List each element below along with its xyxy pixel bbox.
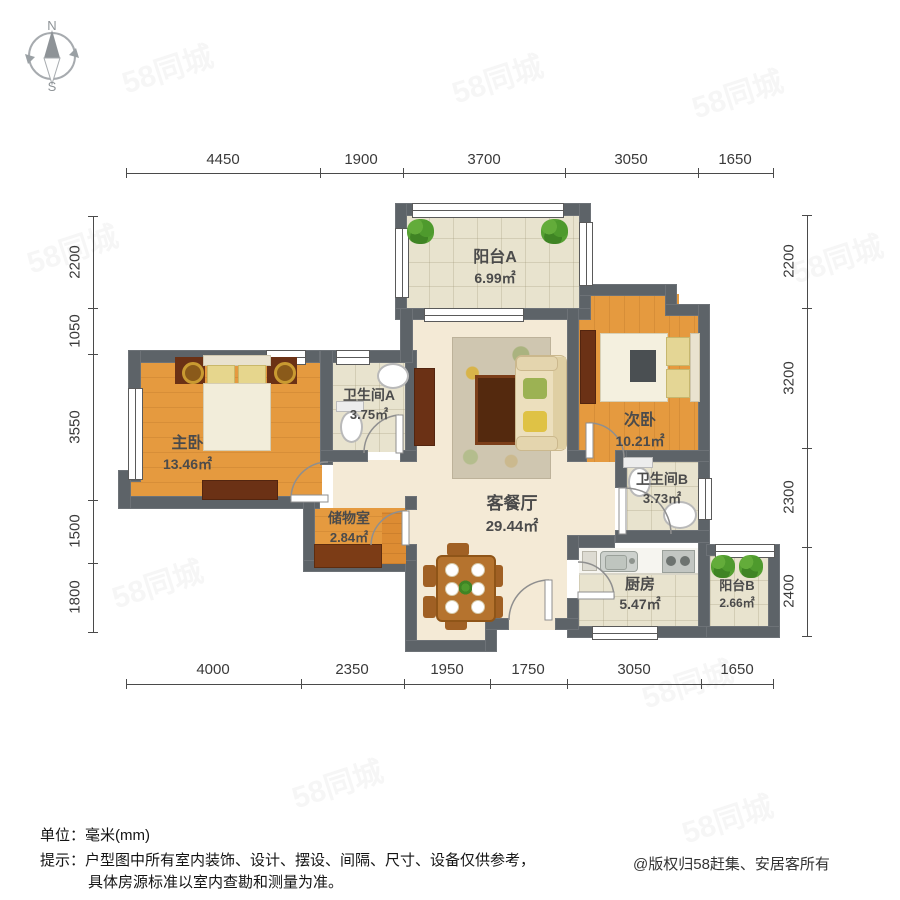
entry-door-leaf: [545, 580, 552, 620]
room-name: 卫生间B: [616, 470, 708, 490]
dimension-label: 3550: [67, 410, 84, 443]
dimension-label: 3200: [781, 361, 798, 394]
room-label-storage: 储物室 2.84㎡: [303, 509, 395, 547]
dimension-label: 1950: [430, 661, 463, 678]
plant-icon: [541, 219, 568, 244]
room-label-balcony-b: 阳台B 2.66㎡: [700, 577, 774, 612]
footer-tip-line2: 具体房源标准以室内查勘和测量为准。: [88, 871, 343, 892]
room-area: 29.44㎡: [437, 516, 587, 537]
dimension-tick: [88, 354, 98, 355]
compass-icon: N S: [22, 14, 82, 94]
dimension-tick: [698, 168, 699, 178]
dimension-label: 2400: [781, 574, 798, 607]
room-area: 10.21㎡: [582, 432, 698, 452]
door-arc: [509, 580, 549, 620]
door-leaf: [402, 511, 409, 545]
dimension-tick: [301, 679, 302, 689]
dimension-tick: [126, 168, 127, 178]
dimension-label: 1750: [511, 661, 544, 678]
dimension-label: 2300: [781, 480, 798, 513]
dimension-tick: [567, 679, 568, 689]
room-name: 阳台A: [415, 247, 575, 269]
dimension-tick: [802, 448, 812, 449]
room-name: 次卧: [582, 410, 698, 432]
room-area: 2.66㎡: [700, 595, 774, 612]
dimension-tick: [126, 679, 127, 689]
dimension-tick: [88, 563, 98, 564]
room-name: 厨房: [590, 574, 690, 595]
dimension-label: 1800: [67, 580, 84, 613]
dimension-label: 1050: [67, 314, 84, 347]
room-label-bathroom-b: 卫生间B 3.73㎡: [616, 470, 708, 508]
dimension-label: 1500: [67, 514, 84, 547]
room-name: 客餐厅: [437, 492, 587, 516]
dimension-tick: [88, 308, 98, 309]
room-area: 3.75㎡: [328, 406, 410, 424]
dimension-tick: [802, 308, 812, 309]
dimension-line-left: [93, 216, 94, 632]
dimension-tick: [773, 679, 774, 689]
dimension-label: 1900: [344, 151, 377, 168]
room-area: 13.46㎡: [130, 455, 245, 475]
footer-unit-text: 单位：毫米(mm): [40, 824, 150, 845]
dimension-label: 1650: [720, 661, 753, 678]
dimension-label: 3050: [614, 151, 647, 168]
room-label-kitchen: 厨房 5.47㎡: [590, 574, 690, 615]
room-name: 储物室: [303, 509, 395, 529]
door-arc: [291, 462, 328, 499]
dimension-tick: [565, 168, 566, 178]
room-area: 5.47㎡: [590, 595, 690, 615]
door-leaf: [291, 495, 328, 502]
dimension-label: 2200: [781, 244, 798, 277]
copyright-text: @版权归58赶集、安居客所有: [633, 853, 830, 874]
room-name: 阳台B: [700, 577, 774, 595]
plant-icon: [711, 555, 735, 578]
dimension-line-right: [807, 215, 808, 636]
dimension-tick: [802, 636, 812, 637]
dimension-tick: [773, 168, 774, 178]
dimension-line-bottom: [126, 684, 773, 685]
dimension-tick: [88, 632, 98, 633]
dimension-tick: [320, 168, 321, 178]
dimension-label: 3700: [467, 151, 500, 168]
plant-icon: [739, 555, 763, 578]
floorplan-page: 58同城 58同城 58同城 58同城 58同城 58同城 58同城 58同城 …: [0, 0, 900, 900]
footer-tip-line1: 提示：户型图中所有室内装饰、设计、摆设、间隔、尺寸、设备仅供参考，: [40, 849, 535, 870]
dimension-tick: [403, 168, 404, 178]
room-name: 卫生间A: [328, 386, 410, 406]
dimension-label: 4450: [206, 151, 239, 168]
room-area: 2.84㎡: [303, 529, 395, 547]
room-area: 3.73㎡: [616, 490, 708, 508]
dimension-tick: [404, 679, 405, 689]
room-label-bathroom-a: 卫生间A 3.75㎡: [328, 386, 410, 424]
dimension-label: 3050: [617, 661, 650, 678]
dimension-tick: [701, 679, 702, 689]
dimension-tick: [490, 679, 491, 689]
room-label-master-bedroom: 主卧 13.46㎡: [130, 433, 245, 475]
room-area: 6.99㎡: [415, 269, 575, 289]
dimension-line-top: [126, 173, 773, 174]
dimension-label: 2200: [67, 245, 84, 278]
room-label-living-dining: 客餐厅 29.44㎡: [437, 492, 587, 537]
dimension-label: 4000: [196, 661, 229, 678]
room-label-balcony-a: 阳台A 6.99㎡: [415, 247, 575, 289]
dimension-label: 1650: [718, 151, 751, 168]
compass-north-label: N: [47, 18, 56, 33]
plant-icon: [407, 219, 434, 244]
dimension-tick: [88, 500, 98, 501]
dimension-label: 2350: [335, 661, 368, 678]
compass-south-label: S: [48, 79, 57, 94]
dimension-tick: [802, 547, 812, 548]
room-label-second-bedroom: 次卧 10.21㎡: [582, 410, 698, 452]
dimension-tick: [802, 215, 812, 216]
dimension-tick: [88, 216, 98, 217]
room-name: 主卧: [130, 433, 245, 455]
